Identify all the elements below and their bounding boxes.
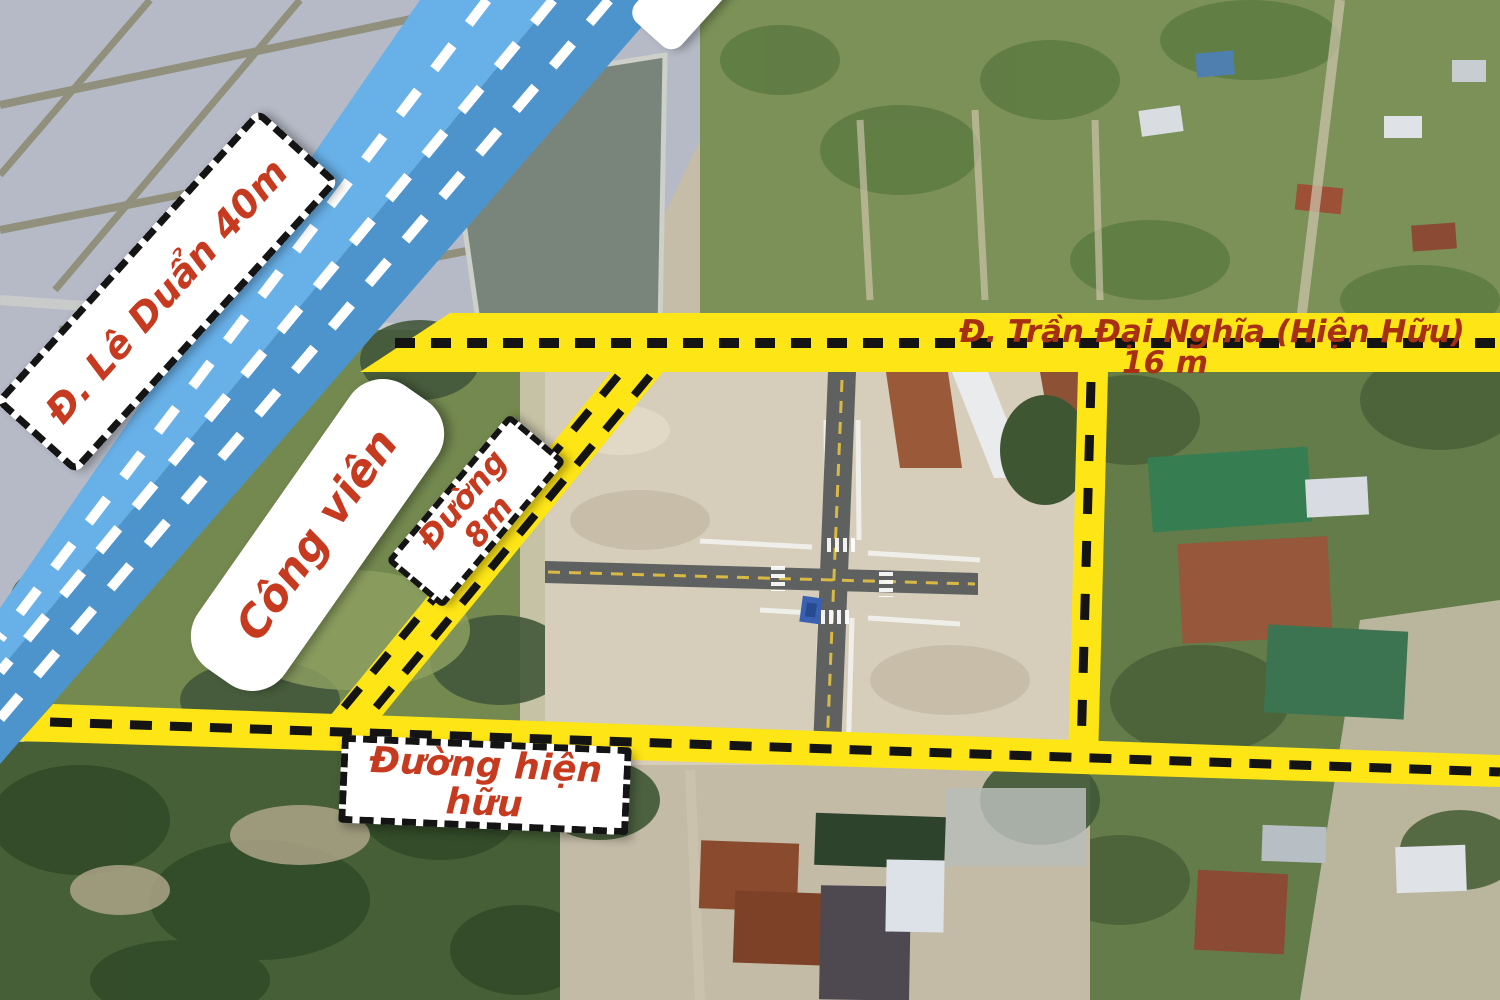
- road-hien-huu-overlay: [20, 704, 1500, 787]
- road-label-hien-huu: Đường hiện hữu: [338, 735, 632, 836]
- aerial-map-image: Đ. Lê Duẩn 40m Công viên Đường 8m Đường …: [0, 0, 1500, 1000]
- road-label-hien-huu-text: Đường hiện hữu: [345, 741, 624, 829]
- road-vertical-overlay: [1068, 372, 1108, 762]
- road-label-tran-dai-nghia-width: 16 m: [1065, 345, 1265, 381]
